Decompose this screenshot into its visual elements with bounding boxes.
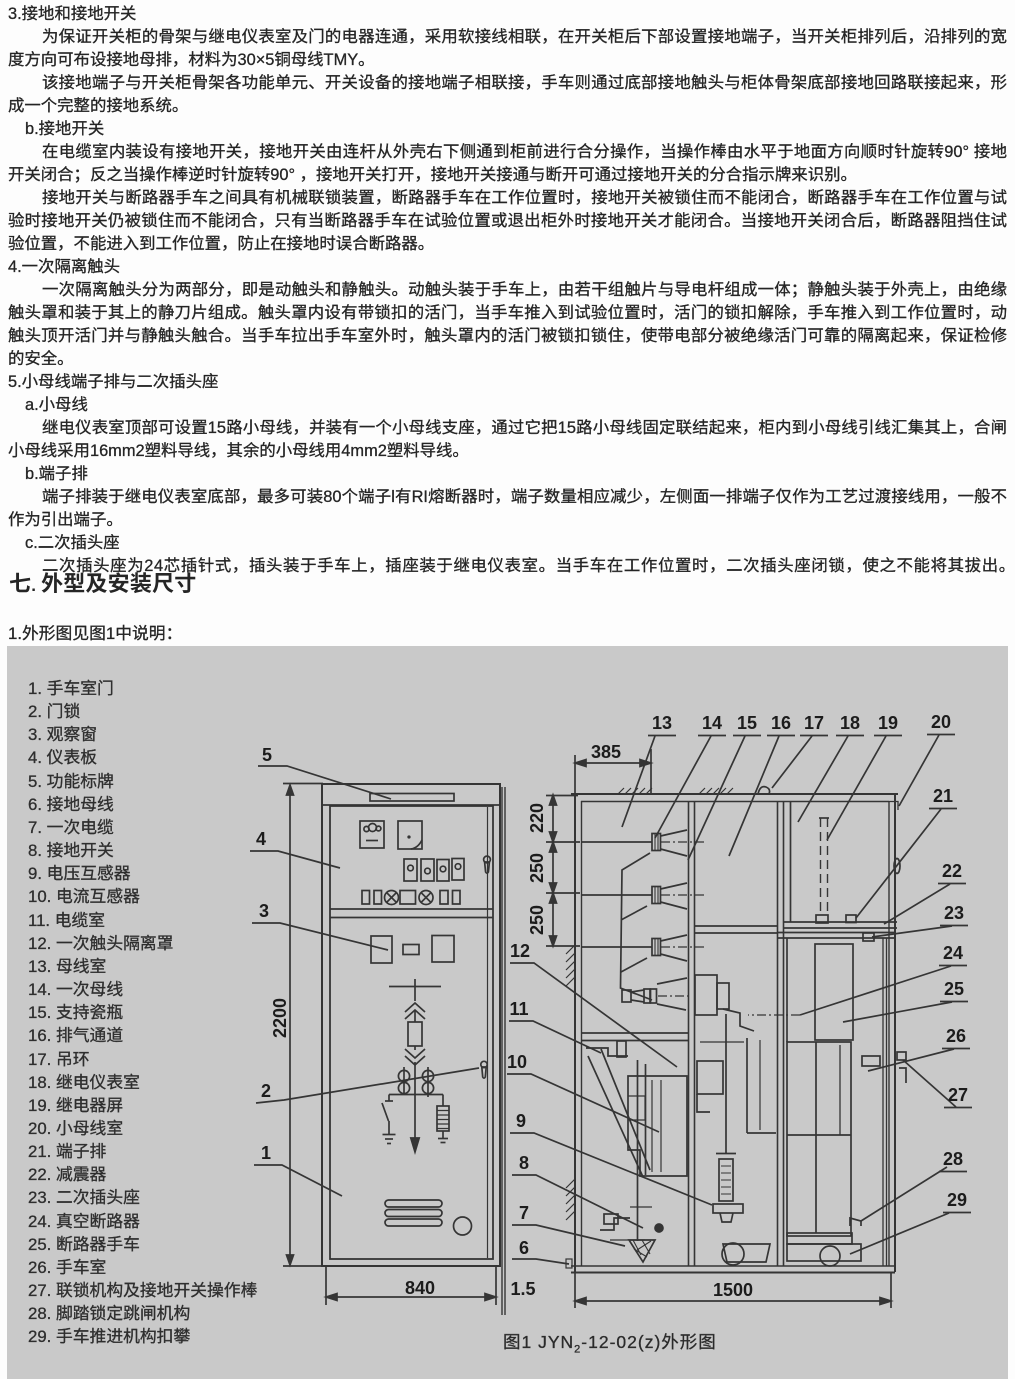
svg-text:2: 2 (261, 1081, 271, 1101)
svg-text:24: 24 (943, 943, 963, 963)
svg-text:4: 4 (256, 829, 266, 849)
svg-text:840: 840 (405, 1278, 435, 1298)
svg-text:17: 17 (804, 713, 824, 733)
svg-text:3: 3 (259, 901, 269, 921)
svg-text:29: 29 (947, 1190, 967, 1210)
svg-text:2200: 2200 (270, 998, 290, 1038)
svg-text:16: 16 (771, 713, 791, 733)
svg-text:19: 19 (878, 713, 898, 733)
svg-text:8: 8 (519, 1153, 529, 1173)
svg-text:250: 250 (527, 905, 547, 935)
svg-text:21: 21 (933, 786, 953, 806)
svg-text:385: 385 (591, 742, 621, 762)
svg-text:18: 18 (840, 713, 860, 733)
svg-text:11: 11 (509, 999, 528, 1019)
svg-text:1500: 1500 (713, 1280, 753, 1300)
svg-text:250: 250 (527, 853, 547, 883)
svg-text:220: 220 (527, 803, 547, 833)
svg-text:7: 7 (519, 1203, 529, 1223)
svg-text:9: 9 (516, 1111, 526, 1131)
svg-text:5: 5 (262, 745, 272, 765)
svg-text:26: 26 (946, 1026, 966, 1046)
svg-text:13: 13 (652, 713, 672, 733)
svg-text:27: 27 (948, 1085, 968, 1105)
svg-text:10: 10 (507, 1052, 527, 1072)
svg-text:12: 12 (510, 941, 530, 961)
svg-text:25: 25 (944, 979, 964, 999)
svg-text:22: 22 (942, 861, 962, 881)
svg-text:23: 23 (944, 903, 964, 923)
svg-text:14: 14 (702, 713, 722, 733)
svg-text:20: 20 (931, 712, 951, 732)
svg-text:6: 6 (519, 1238, 529, 1258)
svg-text:28: 28 (943, 1149, 963, 1169)
svg-text:15: 15 (737, 713, 757, 733)
svg-text:1.5: 1.5 (510, 1279, 535, 1299)
svg-text:1: 1 (261, 1143, 271, 1163)
